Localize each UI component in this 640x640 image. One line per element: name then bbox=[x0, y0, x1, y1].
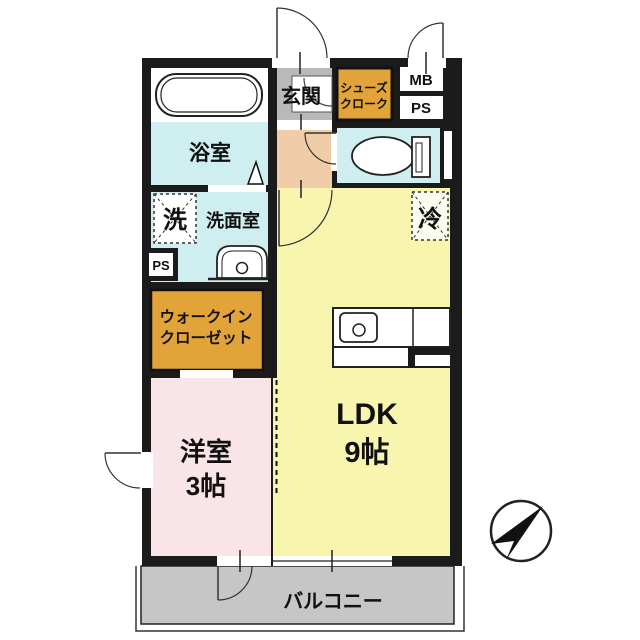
kitchen-counter bbox=[333, 308, 450, 368]
entrance-door-opening bbox=[272, 58, 330, 68]
mb-label: MB bbox=[409, 72, 432, 89]
ldk-floor-strip bbox=[273, 378, 278, 556]
toilet-icon bbox=[352, 137, 430, 177]
ldk-size-label: 9帖 bbox=[344, 436, 389, 469]
meter-box-pipe-space: MB PS bbox=[400, 23, 446, 119]
bedroom-label: 洋室 bbox=[180, 437, 232, 467]
kitchen-wall-slot bbox=[415, 355, 450, 366]
bathroom-label: 浴室 bbox=[189, 141, 231, 165]
shoes-closet-label-line1: シューズ bbox=[340, 80, 387, 95]
wic-label-line2: クローゼット bbox=[159, 328, 252, 347]
floorplan-page: バルコニー 浴室 洗 洗面室 PS bbox=[0, 0, 640, 640]
toilet-bowl bbox=[352, 137, 414, 175]
washer-label: 洗 bbox=[163, 207, 187, 234]
wic-opening bbox=[180, 370, 233, 378]
toilet-window bbox=[444, 131, 452, 179]
room-ldk: 冷 LDK 9帖 bbox=[273, 180, 450, 572]
room-washroom: 洗 洗面室 PS bbox=[142, 192, 268, 282]
balcony-label: バルコニー bbox=[283, 590, 383, 613]
bedroom-floor bbox=[151, 378, 271, 556]
fridge-space: 冷 bbox=[412, 192, 448, 240]
genkan-label: 玄関 bbox=[281, 84, 321, 108]
wic-label-line1: ウォークイン bbox=[159, 308, 252, 326]
kitchen-lower-cabinet bbox=[333, 347, 412, 367]
bedroom-size-label: 3帖 bbox=[186, 471, 226, 501]
genkan-threshold bbox=[277, 120, 332, 130]
ldk-label: LDK bbox=[336, 398, 398, 431]
floorplan-drawing: バルコニー 浴室 洗 洗面室 PS bbox=[0, 0, 640, 640]
washer-space: 洗 bbox=[154, 194, 196, 243]
washroom-label: 洗面室 bbox=[206, 210, 260, 231]
balcony-door-opening bbox=[217, 556, 271, 566]
ps-side-label: PS bbox=[152, 258, 170, 273]
bedroom-window-arc bbox=[105, 453, 140, 488]
fridge-label: 冷 bbox=[418, 205, 442, 233]
service-door-opening bbox=[408, 58, 446, 68]
bath-door-opening bbox=[208, 185, 266, 192]
room-shoes-closet: シューズ クローク bbox=[337, 68, 392, 120]
toilet-door-opening bbox=[331, 133, 337, 171]
shoes-closet-label-line2: クローク bbox=[340, 97, 388, 111]
kitchen-sink-drain bbox=[353, 324, 365, 336]
pipe-space-side: PS bbox=[142, 248, 178, 281]
ps-top-label: PS bbox=[411, 100, 431, 117]
entrance-door-arc bbox=[277, 8, 327, 58]
balcony: バルコニー bbox=[136, 566, 464, 631]
toilet-tank-inner bbox=[416, 143, 422, 172]
bedroom-window bbox=[140, 452, 153, 488]
compass bbox=[491, 501, 551, 561]
hallway-floor bbox=[277, 130, 332, 188]
ldk-floor bbox=[277, 188, 450, 556]
room-bathroom: 浴室 bbox=[151, 68, 268, 192]
room-bedroom: 洋室 3帖 bbox=[105, 378, 271, 556]
vanity-drain bbox=[237, 263, 248, 274]
bathtub-icon bbox=[156, 74, 262, 116]
